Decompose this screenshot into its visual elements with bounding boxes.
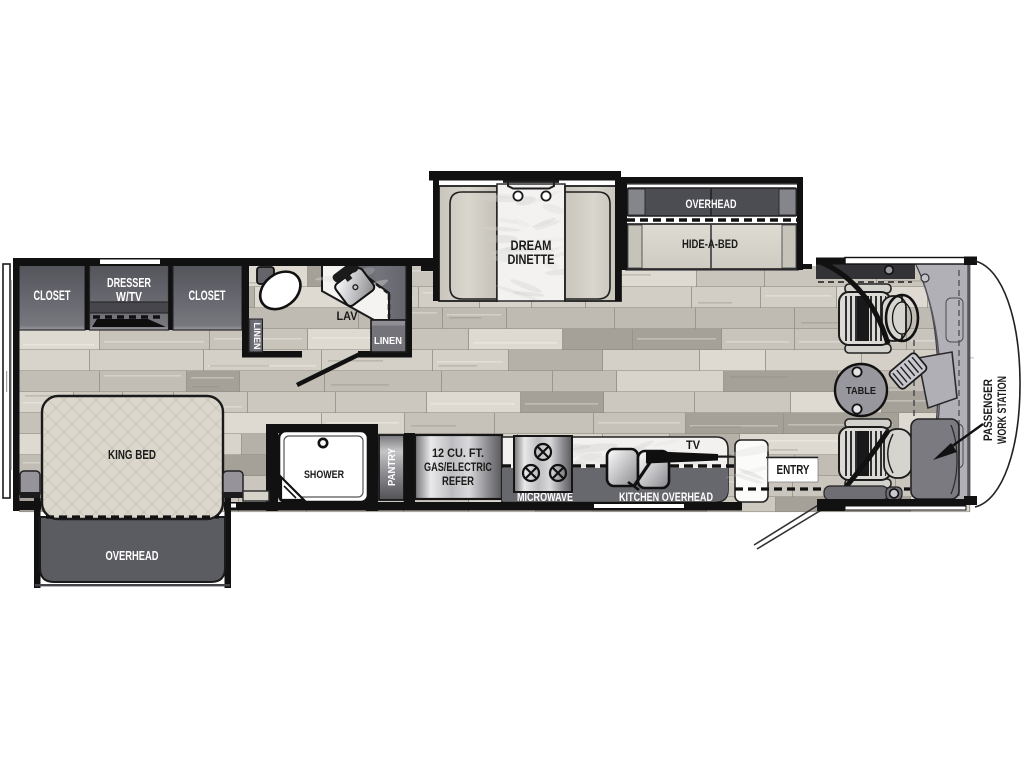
svg-text:PASSENGER: PASSENGER xyxy=(981,379,995,441)
svg-text:TV: TV xyxy=(686,438,700,452)
svg-text:DREAM: DREAM xyxy=(511,238,552,253)
svg-text:DRESSER: DRESSER xyxy=(107,275,151,290)
svg-text:LINEN: LINEN xyxy=(252,323,262,350)
svg-text:PANTRY: PANTRY xyxy=(386,448,398,486)
svg-text:REFER: REFER xyxy=(442,476,475,488)
svg-text:ENTRY: ENTRY xyxy=(777,462,810,477)
svg-text:TABLE: TABLE xyxy=(846,385,876,397)
svg-text:DINETTE: DINETTE xyxy=(508,252,555,267)
svg-text:WORK STATION: WORK STATION xyxy=(995,376,1009,444)
svg-text:SHOWER: SHOWER xyxy=(304,469,344,481)
svg-text:12 CU. FT.: 12 CU. FT. xyxy=(432,448,484,460)
svg-text:LINEN: LINEN xyxy=(374,336,402,347)
svg-text:KITCHEN OVERHEAD: KITCHEN OVERHEAD xyxy=(619,490,713,504)
svg-text:CLOSET: CLOSET xyxy=(34,287,71,303)
svg-text:LAV: LAV xyxy=(337,311,358,323)
svg-text:HIDE-A-BED: HIDE-A-BED xyxy=(682,239,738,251)
svg-text:CLOSET: CLOSET xyxy=(189,287,226,303)
svg-text:OVERHEAD: OVERHEAD xyxy=(106,549,159,563)
svg-text:GAS/ELECTRIC: GAS/ELECTRIC xyxy=(424,462,492,474)
svg-text:W/TV: W/TV xyxy=(116,289,142,304)
svg-text:OVERHEAD: OVERHEAD xyxy=(686,199,737,211)
svg-text:KING BED: KING BED xyxy=(108,448,156,462)
